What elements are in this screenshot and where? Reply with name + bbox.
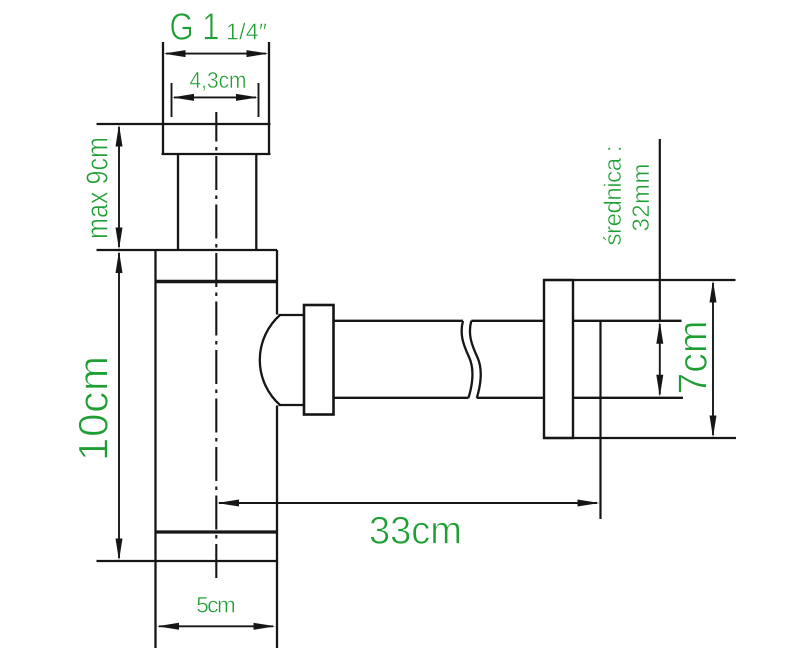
svg-text:33cm: 33cm bbox=[369, 509, 462, 552]
svg-text:10cm: 10cm bbox=[69, 356, 116, 461]
svg-text:32mm: 32mm bbox=[628, 164, 655, 232]
svg-text:5cm: 5cm bbox=[196, 592, 236, 617]
svg-text:4,3cm: 4,3cm bbox=[190, 67, 247, 93]
svg-text:max 9cm: max 9cm bbox=[80, 137, 115, 239]
svg-text:G 1: G 1 bbox=[170, 6, 220, 48]
svg-text:1/4″: 1/4″ bbox=[226, 18, 267, 44]
svg-text:średnica :: średnica : bbox=[600, 146, 627, 246]
svg-text:7cm: 7cm bbox=[670, 321, 716, 395]
